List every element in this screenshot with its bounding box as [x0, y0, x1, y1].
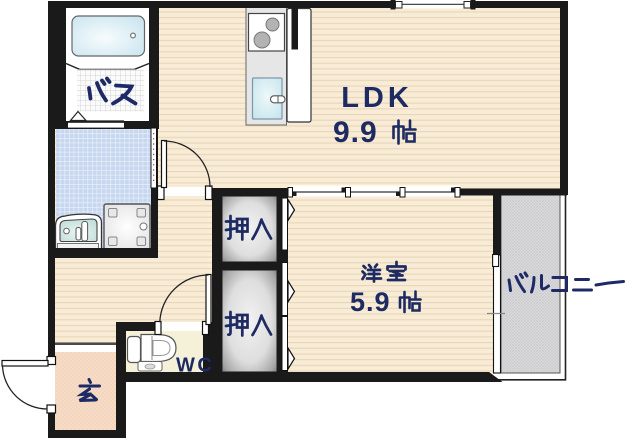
- svg-text:WC: WC: [176, 355, 214, 377]
- svg-text:LDK: LDK: [341, 82, 413, 114]
- svg-text:9.9: 9.9: [333, 116, 378, 149]
- svg-text:5.9: 5.9: [350, 287, 391, 317]
